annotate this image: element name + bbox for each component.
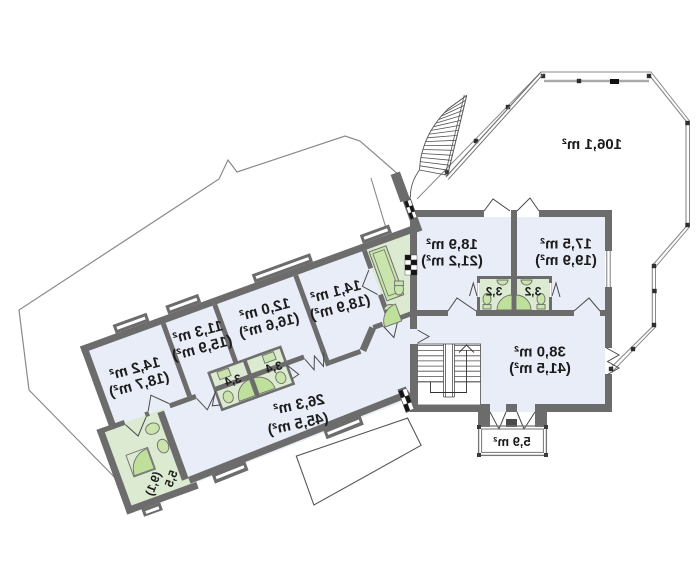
- svg-text:18,9 m²: 18,9 m²: [426, 236, 478, 253]
- svg-text:5,9 m²: 5,9 m²: [493, 434, 531, 449]
- svg-text:3,2: 3,2: [524, 285, 541, 299]
- svg-text:(21,2 m²): (21,2 m²): [421, 252, 483, 269]
- svg-text:(19,9 m²): (19,9 m²): [535, 252, 597, 269]
- svg-text:(41,5 m²): (41,5 m²): [509, 360, 571, 377]
- svg-text:3,2: 3,2: [485, 285, 502, 299]
- svg-text:17,5 m²: 17,5 m²: [540, 236, 592, 253]
- svg-text:38,0 m²: 38,0 m²: [514, 344, 566, 361]
- svg-text:106,1 m²: 106,1 m²: [562, 136, 622, 153]
